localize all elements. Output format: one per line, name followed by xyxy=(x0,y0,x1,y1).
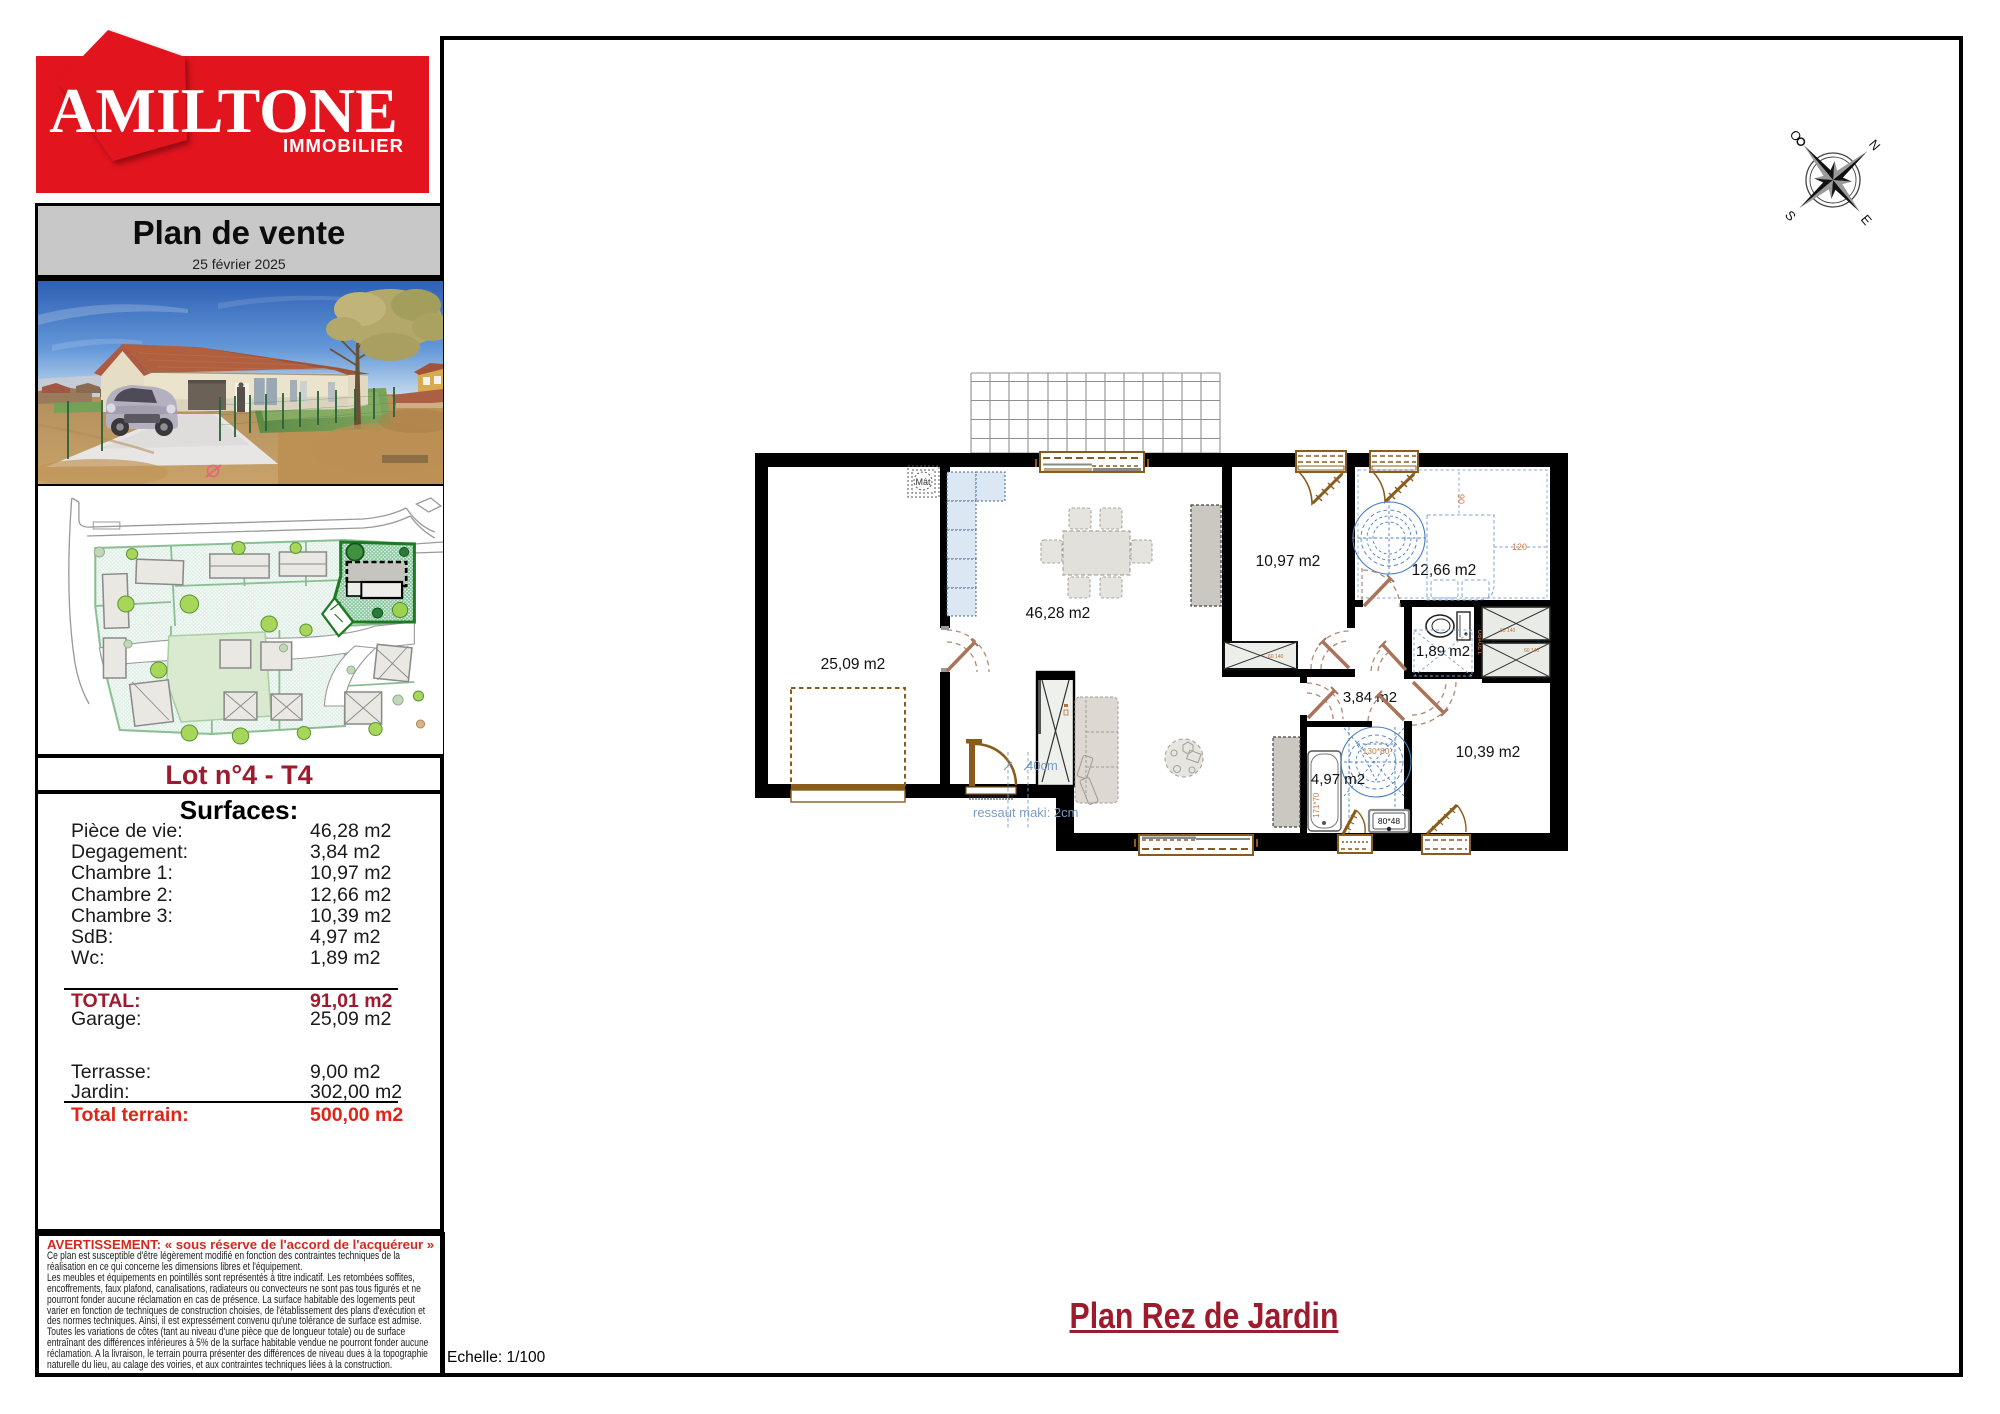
svg-text:130*80: 130*80 xyxy=(1363,746,1390,756)
svg-text:Mât: Mât xyxy=(915,477,931,487)
svg-text:40cm: 40cm xyxy=(1026,758,1058,773)
svg-text:12,66 m2: 12,66 m2 xyxy=(1412,562,1477,579)
svg-text:1,89 m2: 1,89 m2 xyxy=(1416,643,1470,660)
svg-text:60 140: 60 140 xyxy=(1268,654,1284,660)
svg-text:171*70: 171*70 xyxy=(1312,792,1321,818)
svg-text:60 140: 60 140 xyxy=(1500,628,1516,634)
svg-text:120: 120 xyxy=(1512,542,1527,552)
svg-text:ressaut maki: 2cm: ressaut maki: 2cm xyxy=(973,805,1078,820)
svg-text:60 140: 60 140 xyxy=(1524,648,1540,654)
svg-text:90: 90 xyxy=(1456,494,1466,504)
svg-text:25,09 m2: 25,09 m2 xyxy=(821,656,886,673)
svg-text:4,97 m2: 4,97 m2 xyxy=(1311,771,1365,788)
svg-text:80*48: 80*48 xyxy=(1378,816,1400,826)
svg-text:46,28 m2: 46,28 m2 xyxy=(1026,605,1091,622)
svg-text:10,39 m2: 10,39 m2 xyxy=(1456,744,1521,761)
svg-text:10,97 m2: 10,97 m2 xyxy=(1256,553,1321,570)
